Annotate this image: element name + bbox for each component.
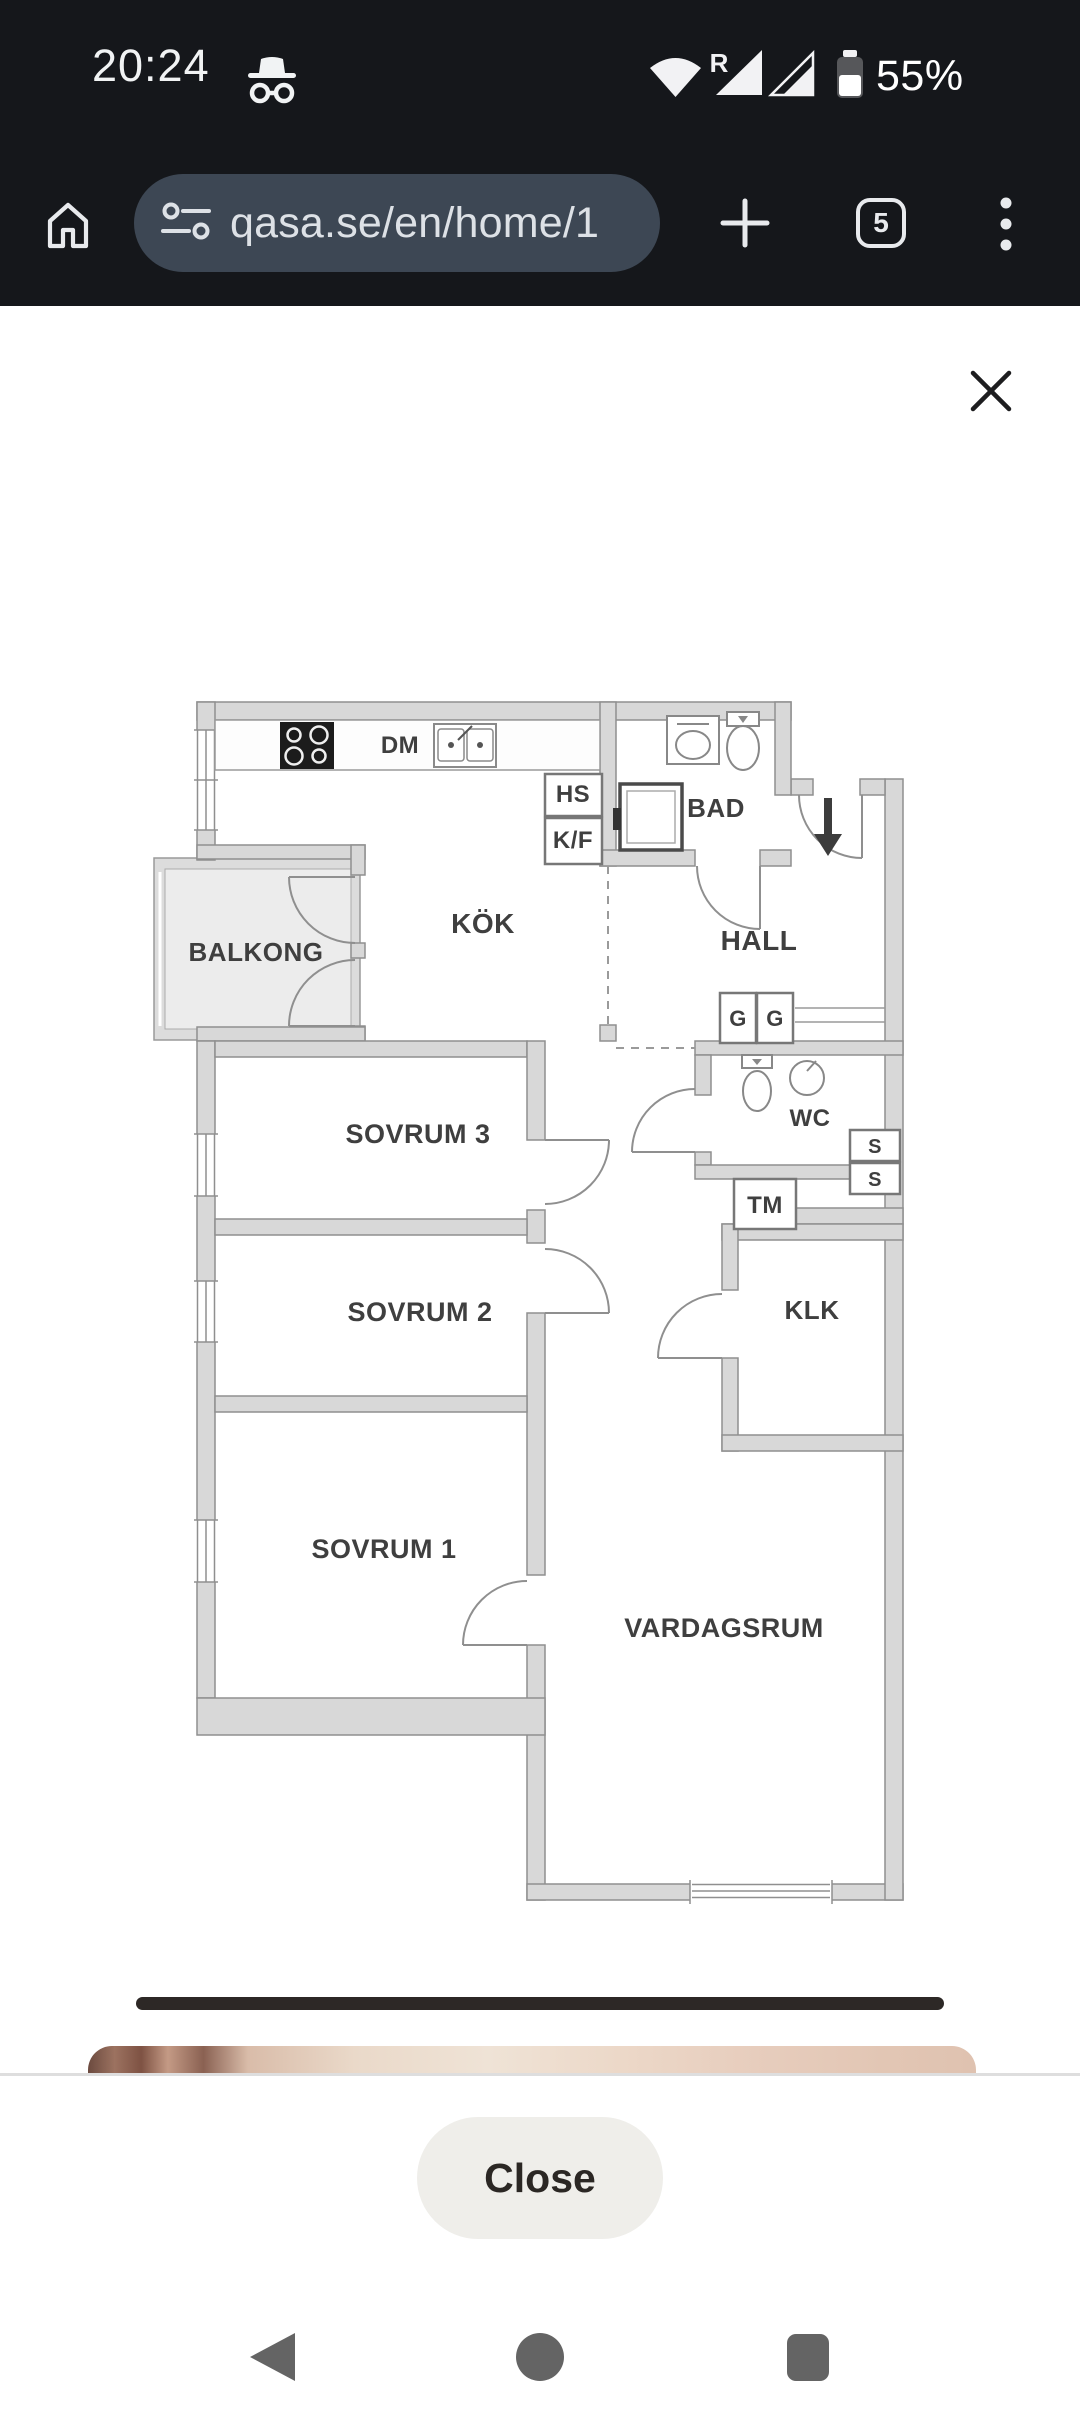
room-label-vardagsrum: VARDAGSRUM: [624, 1613, 824, 1643]
status-icons: R: [640, 42, 880, 109]
room-label-g: G: [766, 1006, 784, 1031]
wifi-icon: [650, 58, 701, 97]
site-settings-icon[interactable]: [160, 200, 212, 247]
image-divider-bar: [136, 1997, 944, 2010]
floorplan-image[interactable]: DMHSK/FBADKÖKHALLBALKONGGGWCSOVRUM 3SSTM…: [150, 690, 930, 1905]
shower-icon: [613, 784, 682, 850]
tab-switcher[interactable]: 5: [856, 198, 906, 248]
room-label-hall: HALL: [721, 925, 798, 956]
stove-icon: [280, 722, 334, 769]
room-label-klk: KLK: [785, 1295, 840, 1325]
room-label-tm: TM: [747, 1192, 783, 1219]
new-tab-plus-icon[interactable]: [717, 195, 773, 256]
room-label-sovrum-2: SOVRUM 2: [347, 1297, 492, 1327]
room-label-balkong: BALKONG: [189, 937, 324, 967]
recents-square-icon[interactable]: [787, 2334, 829, 2381]
room-label-wc: WC: [790, 1105, 831, 1132]
room-label-s: S: [868, 1136, 882, 1158]
bath-sink-icon: [667, 716, 719, 764]
room-label-sovrum-1: SOVRUM 1: [311, 1534, 456, 1564]
room-label-sovrum-3: SOVRUM 3: [345, 1119, 490, 1149]
battery-percent: 55%: [876, 52, 964, 101]
coat-rail: [795, 1008, 885, 1022]
room-label-bad: BAD: [687, 793, 745, 823]
home-icon[interactable]: [40, 196, 96, 257]
room-label-g: G: [729, 1006, 747, 1031]
entry-arrow-icon: [814, 798, 842, 856]
room-label-dm: DM: [381, 732, 419, 759]
sink-icon: [434, 724, 496, 767]
back-triangle-icon[interactable]: [250, 2333, 295, 2381]
room-label-k-k: KÖK: [451, 908, 515, 939]
url-text[interactable]: qasa.se/en/home/1: [230, 199, 599, 248]
wc-toilet-icon: [742, 1055, 772, 1111]
room-label-k-f: K/F: [553, 827, 593, 854]
closet-boxes: [545, 774, 900, 1229]
close-button[interactable]: Close: [417, 2117, 663, 2239]
tab-count: 5: [873, 207, 889, 239]
network-type-label: R: [710, 48, 729, 78]
next-photo-preview[interactable]: [88, 2046, 976, 2074]
incognito-icon: [244, 52, 300, 109]
url-bar[interactable]: qasa.se/en/home/1: [134, 174, 660, 272]
three-dot-menu-icon[interactable]: [994, 196, 1018, 257]
android-nav-bar: [0, 2284, 1080, 2424]
room-label-hs: HS: [556, 781, 590, 808]
wc-sink-icon: [790, 1061, 824, 1095]
battery-icon: [837, 50, 863, 98]
close-x-icon[interactable]: [962, 362, 1020, 420]
bath-toilet-icon: [727, 712, 759, 770]
browser-chrome: 20:24 R: [0, 0, 1080, 306]
phone-screen: 20:24 R: [0, 0, 1080, 2424]
room-label-s: S: [868, 1169, 882, 1191]
home-circle-icon[interactable]: [516, 2333, 564, 2381]
cellular-signal-icon-2: [771, 53, 813, 95]
status-time: 20:24: [92, 40, 210, 92]
dashed-lines: [342, 735, 695, 1048]
